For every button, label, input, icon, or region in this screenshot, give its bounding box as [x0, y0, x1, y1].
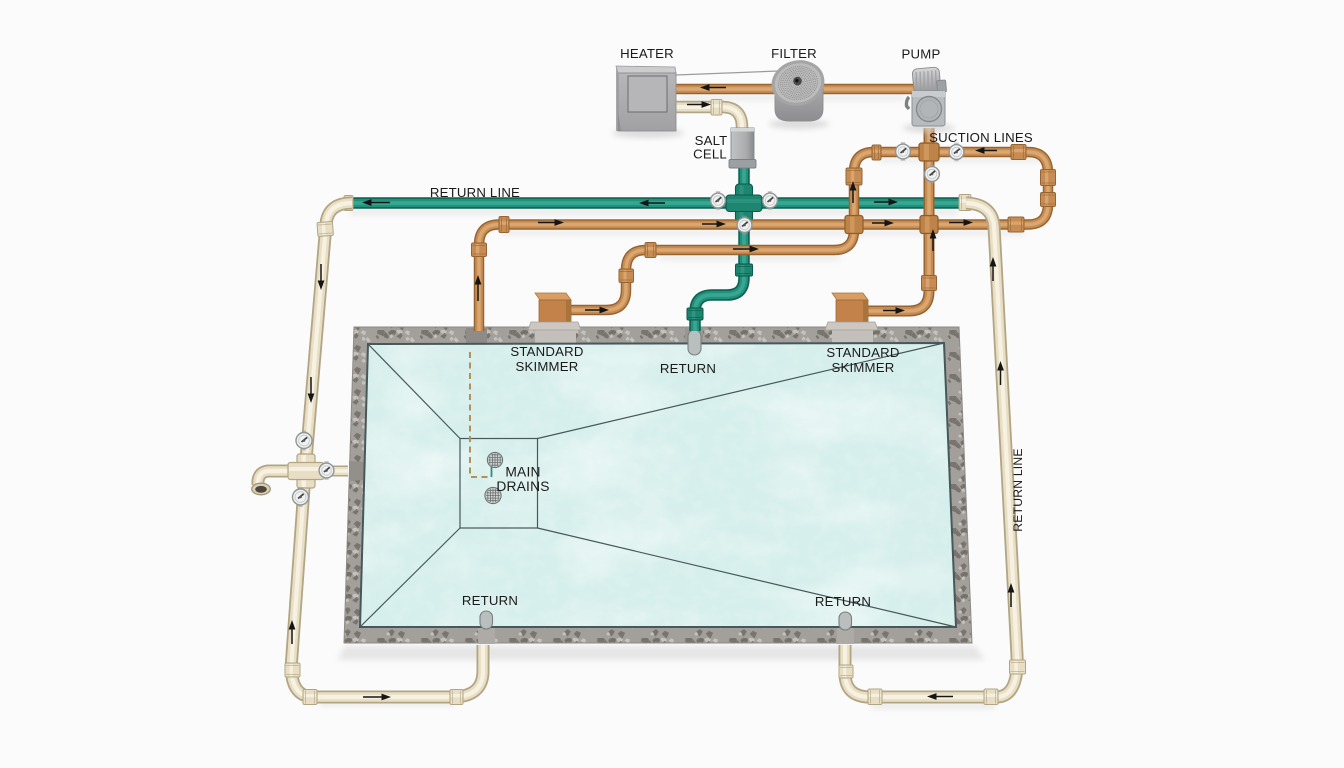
svg-text:HEATER: HEATER [620, 46, 674, 61]
svg-text:DRAINS: DRAINS [496, 479, 549, 494]
svg-text:SKIMMER: SKIMMER [832, 360, 895, 375]
svg-text:MAIN: MAIN [505, 465, 540, 480]
svg-text:SKIMMER: SKIMMER [516, 359, 579, 374]
svg-text:RETURN LINE: RETURN LINE [430, 185, 520, 200]
svg-text:PUMP: PUMP [902, 47, 941, 62]
svg-text:STANDARD: STANDARD [510, 344, 583, 359]
svg-text:RETURN: RETURN [815, 594, 871, 609]
svg-text:RETURN LINE: RETURN LINE [1011, 448, 1025, 531]
svg-text:RETURN: RETURN [462, 593, 518, 608]
svg-text:STANDARD: STANDARD [826, 345, 899, 360]
svg-text:FILTER: FILTER [771, 46, 817, 61]
svg-text:RETURN: RETURN [660, 361, 716, 376]
svg-text:CELL: CELL [693, 147, 727, 162]
svg-text:SUCTION LINES: SUCTION LINES [929, 130, 1033, 145]
